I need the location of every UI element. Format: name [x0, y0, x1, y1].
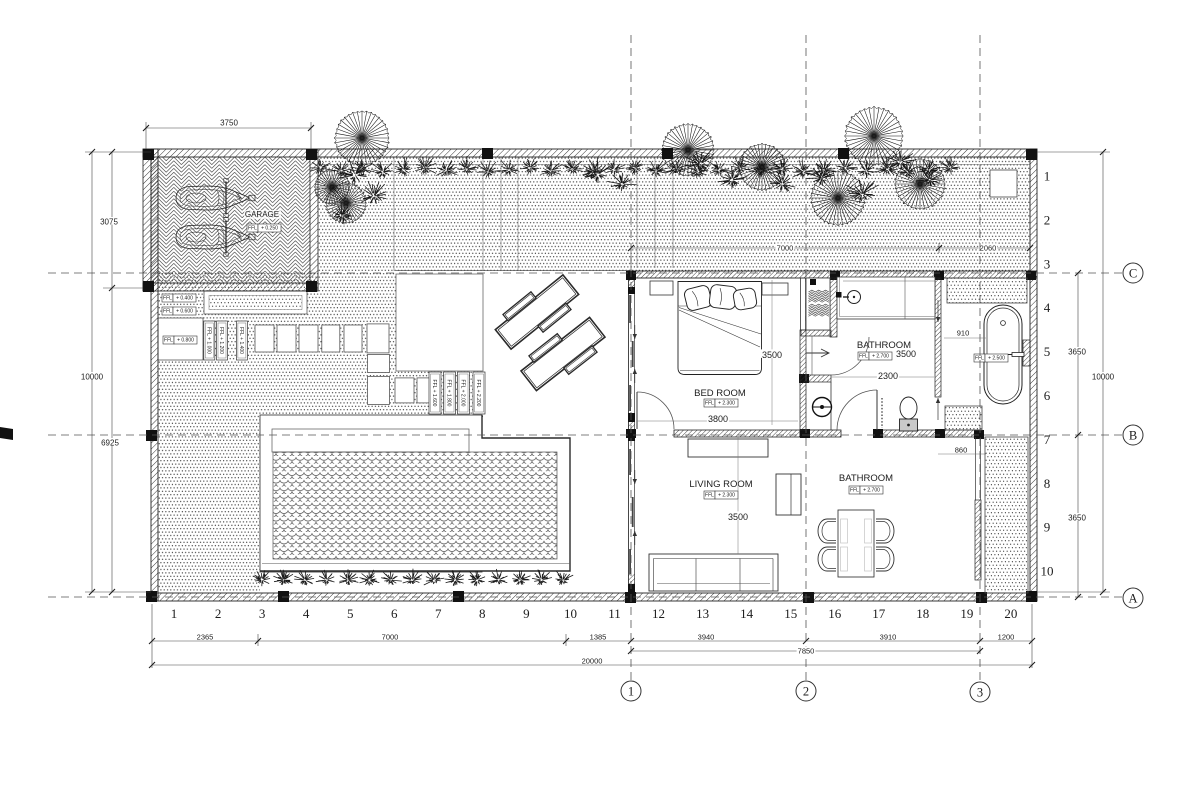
svg-text:GARAGE: GARAGE: [245, 210, 279, 219]
svg-text:2365: 2365: [197, 632, 214, 641]
svg-text:10000: 10000: [1092, 373, 1115, 382]
svg-text:BED ROOM: BED ROOM: [694, 388, 746, 399]
svg-text:15: 15: [784, 606, 797, 621]
svg-text:FFL + 1.800: FFL + 1.800: [446, 380, 452, 407]
svg-text:+ 0.400: + 0.400: [176, 296, 193, 302]
svg-text:+ 2.300: + 2.300: [718, 493, 735, 499]
svg-text:9: 9: [1044, 520, 1051, 535]
svg-text:FFL + 1.200: FFL + 1.200: [218, 327, 224, 354]
svg-text:LIVING ROOM: LIVING ROOM: [689, 479, 752, 490]
svg-text:1: 1: [1044, 169, 1051, 184]
svg-text:8: 8: [479, 606, 486, 621]
svg-text:19: 19: [960, 606, 973, 621]
svg-text:20: 20: [1004, 606, 1017, 621]
svg-text:FFL + 1.600: FFL + 1.600: [431, 380, 437, 407]
svg-text:+ 2.300: + 2.300: [718, 401, 735, 407]
svg-text:16: 16: [828, 606, 842, 621]
svg-text:7000: 7000: [777, 243, 794, 252]
svg-text:11: 11: [608, 606, 621, 621]
svg-text:7: 7: [435, 606, 442, 621]
svg-text:17: 17: [872, 606, 886, 621]
svg-text:860: 860: [955, 445, 968, 454]
svg-text:10: 10: [1041, 564, 1054, 579]
svg-text:14: 14: [740, 606, 754, 621]
svg-text:3500: 3500: [896, 349, 916, 359]
svg-text:FFL: FFL: [850, 488, 859, 494]
svg-text:2: 2: [215, 606, 222, 621]
svg-text:1385: 1385: [590, 632, 607, 641]
svg-text:C: C: [1129, 267, 1137, 281]
svg-text:3: 3: [259, 606, 266, 621]
svg-text:3940: 3940: [698, 632, 715, 641]
svg-text:3500: 3500: [728, 512, 748, 522]
svg-text:+ 2.700: + 2.700: [872, 354, 889, 360]
svg-text:FFL: FFL: [859, 354, 868, 360]
svg-text:+ 0.250: + 0.250: [261, 226, 278, 232]
svg-text:+ 0.800: + 0.800: [177, 338, 194, 344]
svg-text:3800: 3800: [708, 414, 728, 424]
svg-text:2300: 2300: [878, 371, 898, 381]
svg-text:FFL: FFL: [163, 296, 172, 302]
svg-text:1: 1: [628, 685, 634, 699]
svg-text:5: 5: [1044, 344, 1051, 359]
svg-text:7: 7: [1044, 432, 1051, 447]
svg-text:9: 9: [523, 606, 530, 621]
svg-text:3: 3: [977, 686, 983, 700]
svg-text:4: 4: [1044, 300, 1051, 315]
svg-text:2: 2: [803, 685, 809, 699]
svg-text:BATHROOM: BATHROOM: [839, 473, 893, 484]
svg-text:1200: 1200: [998, 632, 1015, 641]
svg-text:10000: 10000: [81, 373, 104, 382]
svg-text:FFL: FFL: [705, 493, 714, 499]
svg-text:4: 4: [303, 606, 310, 621]
svg-text:12: 12: [652, 606, 665, 621]
svg-text:B: B: [1129, 429, 1137, 443]
svg-text:7850: 7850: [798, 646, 815, 655]
svg-text:FFL: FFL: [705, 401, 714, 407]
svg-text:FFL + 1.400: FFL + 1.400: [238, 327, 244, 354]
svg-text:FFL: FFL: [163, 309, 172, 315]
svg-text:20000: 20000: [582, 656, 603, 665]
svg-text:10: 10: [564, 606, 577, 621]
svg-text:3650: 3650: [1068, 348, 1086, 357]
svg-text:3750: 3750: [220, 119, 238, 128]
svg-text:3075: 3075: [100, 218, 118, 227]
svg-text:A: A: [1128, 592, 1137, 606]
svg-text:18: 18: [916, 606, 929, 621]
svg-text:+ 0.600: + 0.600: [176, 309, 193, 315]
svg-text:+ 2.700: + 2.700: [863, 488, 880, 494]
svg-text:7000: 7000: [382, 632, 399, 641]
svg-text:3: 3: [1044, 256, 1051, 271]
svg-text:FFL: FFL: [248, 226, 257, 232]
svg-text:6: 6: [391, 606, 398, 621]
svg-text:FFL: FFL: [164, 338, 173, 344]
svg-text:910: 910: [957, 328, 970, 337]
svg-text:FFL + 2.200: FFL + 2.200: [475, 380, 481, 407]
svg-text:6925: 6925: [101, 439, 119, 448]
svg-text:6: 6: [1044, 388, 1051, 403]
svg-text:FFL + 1.000: FFL + 1.000: [206, 327, 212, 354]
svg-text:2060: 2060: [980, 243, 997, 252]
svg-text:2: 2: [1044, 212, 1051, 227]
svg-text:8: 8: [1044, 476, 1051, 491]
svg-text:3650: 3650: [1068, 514, 1086, 523]
svg-text:5: 5: [347, 606, 354, 621]
svg-text:1: 1: [171, 606, 178, 621]
svg-text:FFL + 2.000: FFL + 2.000: [460, 380, 466, 407]
svg-text:+ 2.500: + 2.500: [988, 356, 1005, 362]
svg-text:3500: 3500: [762, 350, 782, 360]
svg-text:13: 13: [696, 606, 709, 621]
svg-text:3910: 3910: [880, 632, 897, 641]
